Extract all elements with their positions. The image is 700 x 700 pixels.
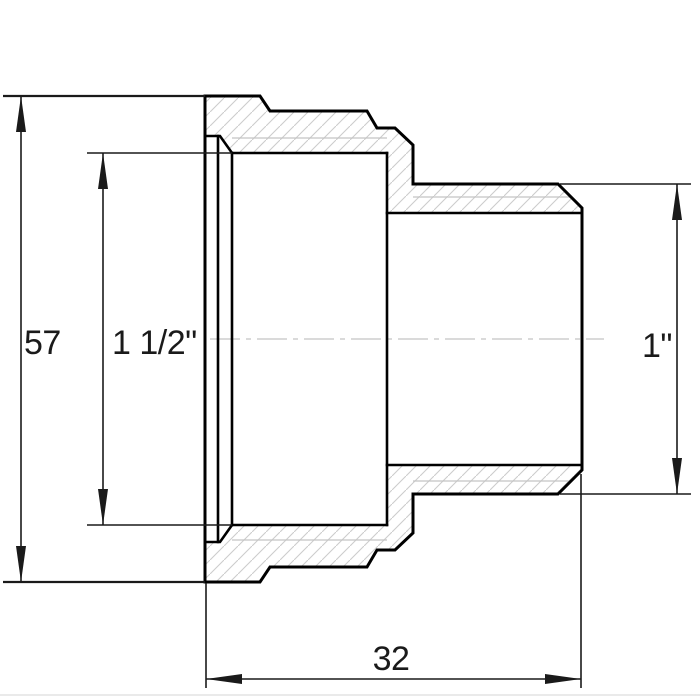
technical-drawing: 57 1 1/2" 1" 32 [0,0,700,700]
dimension-1-1-2-label: 1 1/2" [112,324,197,362]
arrowhead-down [16,546,26,582]
arrowhead-left [206,674,242,684]
arrowhead-up [98,153,108,189]
drawing-page: 57 1 1/2" 1" 32 [0,0,700,700]
arrowhead-down [98,489,108,525]
dimension-57-label: 57 [24,324,61,362]
arrowhead-up [672,184,682,220]
arrowhead-down [672,458,682,494]
dimension-32-label: 32 [373,640,410,678]
hatch-region-bottom [205,465,582,582]
arrowhead-up [16,96,26,132]
dimension-1-label: 1" [642,327,672,365]
hatch-region-top [205,96,582,213]
arrowhead-right [545,674,581,684]
